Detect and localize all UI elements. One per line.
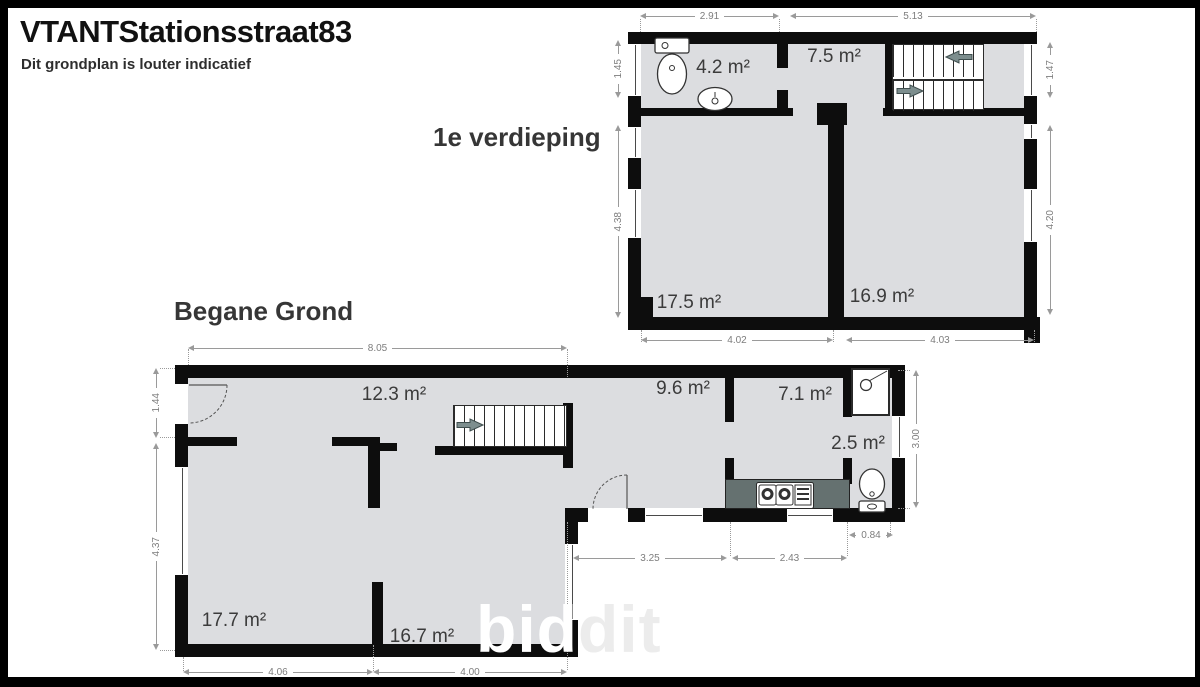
shower-icon — [851, 368, 891, 417]
floorplan-page: VTANTStationsstraat83 Dit grondplan is l… — [0, 0, 1200, 687]
wall — [175, 365, 905, 378]
dimension: 2.43 — [732, 551, 847, 565]
wall — [628, 317, 1037, 330]
window — [892, 416, 905, 458]
dim-extension-line — [847, 522, 848, 556]
dimension: 4.37 — [149, 443, 163, 650]
dimension: 1.47 — [1043, 42, 1057, 98]
dim-extension-line — [160, 368, 175, 369]
dim-extension-line — [898, 370, 910, 371]
sink-icon — [696, 84, 734, 112]
ground-floor-title: Begane Grond — [174, 296, 353, 327]
window — [628, 127, 641, 158]
window — [1024, 44, 1037, 96]
dim-extension-line — [188, 349, 189, 365]
wall — [368, 437, 380, 508]
toilet-icon — [650, 36, 694, 98]
dimension: 4.20 — [1043, 125, 1057, 315]
dimension: 4.02 — [641, 333, 833, 347]
window — [1024, 124, 1037, 139]
dimension: 3.25 — [573, 551, 727, 565]
wall — [725, 377, 734, 422]
front-door-arc — [188, 384, 228, 424]
dimension: 5.13 — [790, 9, 1036, 23]
dim-extension-line — [641, 330, 642, 342]
dim-extension-line — [779, 19, 780, 32]
room-area-label: 17.7 m² — [202, 610, 266, 632]
dim-extension-line — [1034, 330, 1035, 342]
dim-extension-line — [373, 645, 374, 671]
room-area-label: 7.1 m² — [778, 384, 832, 406]
window — [628, 44, 641, 96]
wall — [777, 90, 788, 108]
wall — [885, 44, 892, 116]
window — [175, 467, 188, 575]
room-area-label: 2.5 m² — [831, 433, 885, 455]
wall — [435, 446, 573, 455]
dimension: 4.00 — [373, 665, 567, 679]
frame-top — [0, 0, 1200, 8]
watermark: biddit — [476, 596, 662, 662]
dimension: 8.05 — [188, 341, 567, 355]
dim-extension-line — [898, 508, 910, 509]
dim-extension-line — [160, 650, 175, 651]
watermark-part1: bid — [476, 592, 578, 666]
watermark-part2: dit — [578, 592, 662, 666]
room-area-label: 17.5 m² — [657, 292, 721, 314]
dimension: 2.91 — [640, 9, 779, 23]
room-area-label: 9.6 m² — [656, 378, 710, 400]
wall — [378, 443, 397, 451]
dimension: 4.06 — [183, 665, 373, 679]
dim-extension-line — [833, 330, 834, 342]
dimension: 4.38 — [611, 125, 625, 318]
stairs-direction-right-arrow-icon — [896, 84, 924, 98]
room-area-label: 4.2 m² — [696, 57, 750, 79]
window — [1024, 189, 1037, 242]
back-door-opening — [588, 508, 628, 522]
frame-bottom — [0, 677, 1200, 687]
wall — [777, 44, 788, 68]
dim-extension-line — [730, 522, 731, 556]
window — [628, 189, 641, 238]
toilet-icon — [856, 468, 888, 514]
frame-left — [0, 0, 8, 687]
dim-extension-line — [567, 349, 568, 377]
dim-extension-line — [640, 19, 641, 32]
dimension: 0.84 — [849, 528, 893, 542]
dimension: 1.45 — [611, 40, 625, 98]
frame-right — [1195, 0, 1200, 687]
dim-extension-line — [160, 437, 175, 438]
stairs-direction-right-arrow-icon — [456, 418, 484, 432]
dimension: 1.44 — [149, 368, 163, 438]
dim-extension-line — [183, 657, 184, 671]
first-floor-title: 1e verdieping — [433, 122, 601, 153]
back-door-arc — [590, 472, 630, 510]
dimension: 4.03 — [846, 333, 1034, 347]
room-area-label: 7.5 m² — [807, 46, 861, 68]
dim-extension-line — [890, 522, 891, 534]
window — [787, 508, 833, 522]
wall — [188, 437, 237, 446]
page-title: VTANTStationsstraat83 — [20, 14, 352, 50]
room-area-label: 16.9 m² — [850, 286, 914, 308]
dim-extension-line — [1036, 19, 1037, 32]
kitchen-sink-icon — [756, 482, 814, 509]
room-area-label: 12.3 m² — [362, 384, 426, 406]
wall — [628, 297, 653, 330]
dimension: 3.00 — [909, 370, 923, 508]
room-area-label: 16.7 m² — [390, 626, 454, 648]
page-subtitle: Dit grondplan is louter indicatief — [21, 56, 251, 73]
wall — [372, 582, 383, 644]
front-door-opening — [175, 384, 188, 424]
wall — [828, 120, 844, 317]
window — [645, 508, 703, 522]
stairs-direction-left-arrow-icon — [945, 50, 973, 64]
